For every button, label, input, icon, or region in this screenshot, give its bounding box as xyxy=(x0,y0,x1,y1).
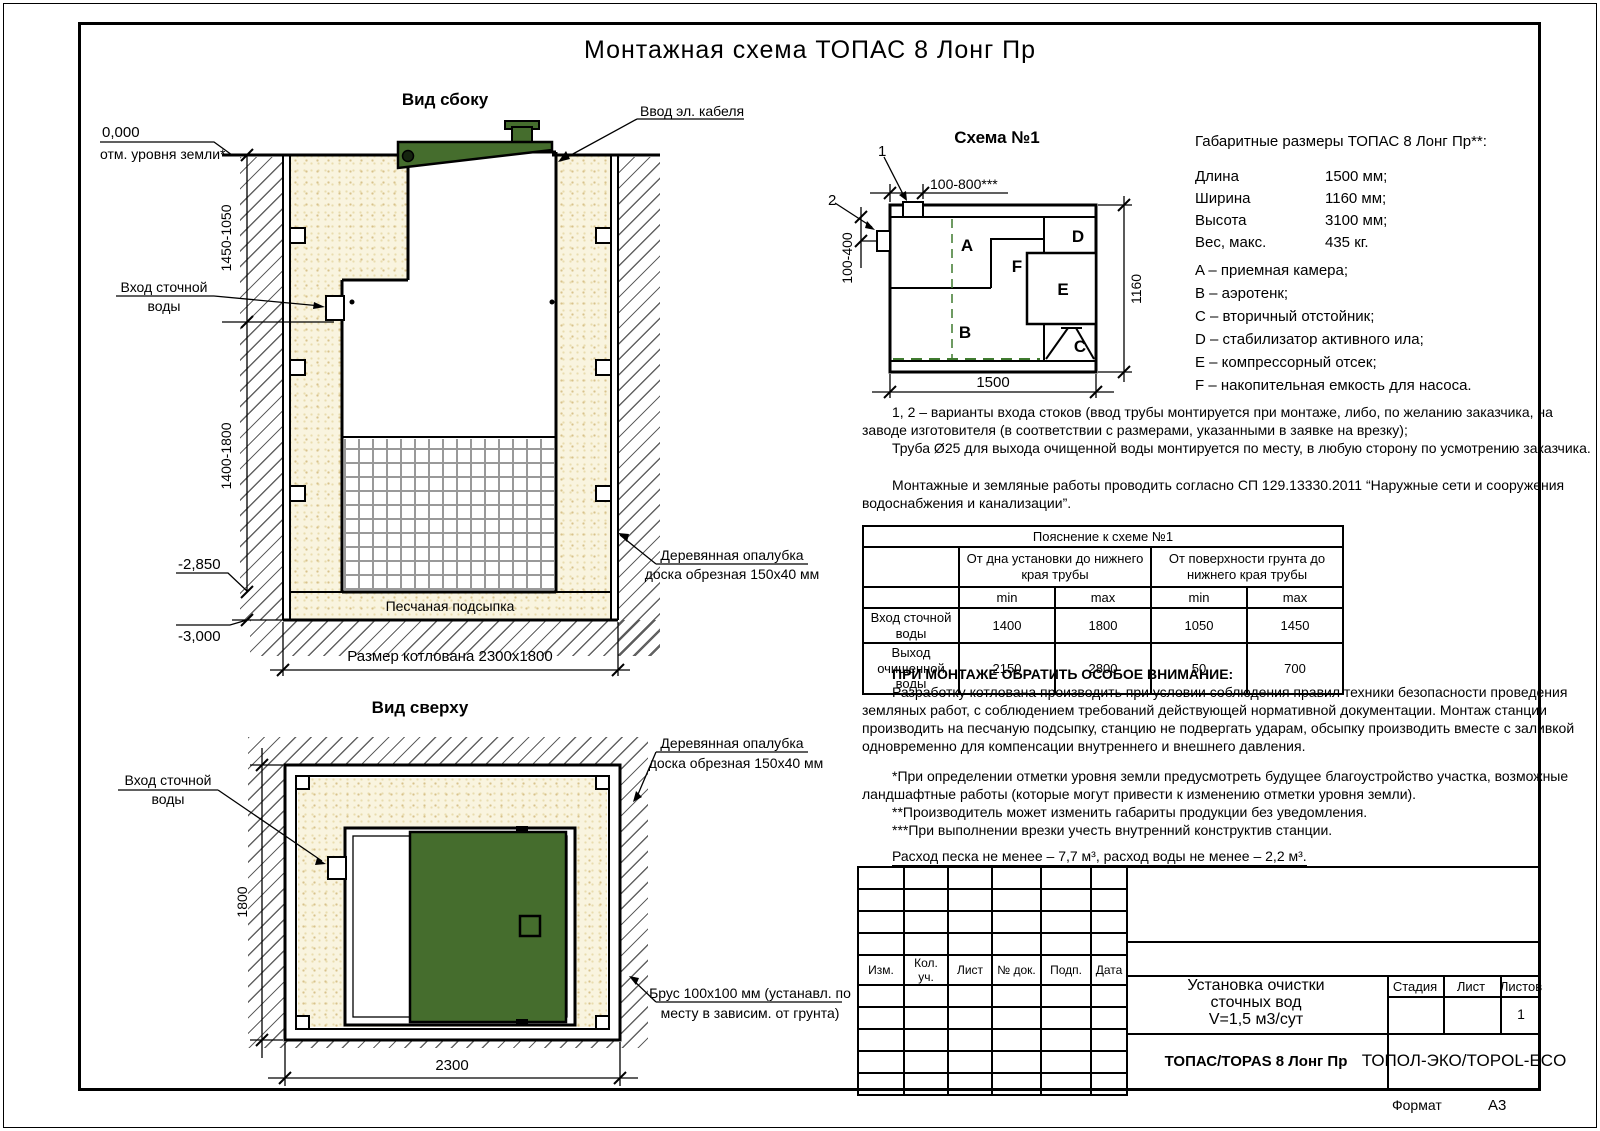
sheets-label: Листов xyxy=(1500,979,1542,994)
tv-formwork-callout-line1: Деревянная опалубка xyxy=(660,735,803,751)
tv-beam-callout-line2: месту в зависим. от грунта) xyxy=(661,1005,840,1021)
sideview-label: Вид сбоку xyxy=(402,90,488,110)
schema1-marker1: 1 xyxy=(878,143,886,160)
format-label: Формат xyxy=(1392,1097,1442,1113)
footnote-1b: ландшафтные работы (которые могут привес… xyxy=(862,786,1416,802)
topview-station-body xyxy=(345,828,575,1025)
tb-divider-h4 xyxy=(1126,1033,1541,1035)
table-row: Вход сточной воды 1400 1800 1050 1450 xyxy=(863,608,1343,643)
cable-entry-callout: Ввод эл. кабеля xyxy=(640,103,744,119)
note-line-4: Монтажные и земляные работы проводить со… xyxy=(892,477,1564,493)
attention-line-4: одновременно для компенсации внутреннего… xyxy=(862,738,1305,754)
legend-d: D – стабилизатор активного ила; xyxy=(1195,331,1424,348)
legend-c: C – вторичный отстойник; xyxy=(1195,308,1374,325)
zero-elevation-mark: 0,000 xyxy=(102,124,140,141)
footnote-2: **Производитель может изменить габариты … xyxy=(892,804,1367,820)
sheet-title: Монтажная схема ТОПАС 8 Лонг Пр xyxy=(584,36,1036,65)
level-bottom-mark: -3,000 xyxy=(178,628,221,645)
note-line-5: водоснабжения и канализации”. xyxy=(862,495,1071,511)
doc-title-line2: сточных вод xyxy=(1210,994,1301,1012)
doc-title-line3: V=1,5 м3/сут xyxy=(1209,1011,1303,1029)
table-max1: max xyxy=(1055,587,1151,608)
compartment-b: B xyxy=(959,323,971,343)
sizes-title: Габаритные размеры ТОПАС 8 Лонг Пр**: xyxy=(1195,133,1487,150)
title-block-revision-table: Изм. Кол. уч. Лист № док. Подп. Дата xyxy=(857,866,1128,1096)
schema1-dim-bottom: 1500 xyxy=(976,374,1009,391)
compartment-e: E xyxy=(1057,280,1068,300)
zero-elevation-note: отм. уровня земли* xyxy=(100,146,225,162)
tb-divider-h1 xyxy=(1126,941,1541,943)
tv-dim-height: 1800 xyxy=(234,886,250,917)
consumption-note: Расход песка не менее – 7,7 м³, расход в… xyxy=(892,848,1307,866)
table-title: Пояснение к схеме №1 xyxy=(863,526,1343,547)
footnote-3: ***При выполнении врезки учесть внутренн… xyxy=(892,822,1332,838)
station-upper-body xyxy=(408,152,556,280)
table-group2: От поверхности грунта до нижнего края тр… xyxy=(1151,547,1343,587)
table-max2: max xyxy=(1247,587,1343,608)
schema1-marker2: 2 xyxy=(828,192,836,209)
tv-inlet-callout-line1: Вход сточной xyxy=(125,772,212,788)
inlet-callout-line1: Вход сточной xyxy=(121,279,208,295)
sideview-sand-left xyxy=(290,280,342,592)
legend-b: B – аэротенк; xyxy=(1195,285,1288,302)
tb-divider-v1 xyxy=(1126,866,1128,1090)
sideview-sand-left-top xyxy=(290,155,408,280)
size-value-height: 3100 мм; xyxy=(1325,212,1387,229)
table-min2: min xyxy=(1151,587,1247,608)
size-value-length: 1500 мм; xyxy=(1325,168,1387,185)
note-line-1: 1, 2 – варианты входа стоков (ввод трубы… xyxy=(892,404,1553,420)
tv-formwork-callout-line2: доска обрезная 150x40 мм xyxy=(649,755,824,771)
sand-bedding-label: Песчаная подсыпка xyxy=(386,598,515,614)
compartment-f: F xyxy=(1012,257,1022,277)
product-name: ТОПАС/TOPAS 8 Лонг Пр xyxy=(1165,1053,1348,1070)
size-label-weight: Вес, макс. xyxy=(1195,234,1266,251)
doc-title-line1: Установка очистки xyxy=(1187,977,1324,995)
tb-divider-h3 xyxy=(1387,996,1541,998)
schema1-label: Схема №1 xyxy=(954,128,1039,148)
tv-inlet-callout-line2: воды xyxy=(152,791,185,807)
dim-depth-lower: 1400-1800 xyxy=(218,423,234,490)
attention-heading: ПРИ МОНТАЖЕ ОБРАТИТЬ ОСОБОЕ ВНИМАНИЕ: xyxy=(892,666,1233,682)
format-value: А3 xyxy=(1488,1097,1506,1114)
attention-line-2: земляных работ, с соблюдением требований… xyxy=(862,702,1547,718)
compartment-d: D xyxy=(1072,227,1084,247)
table-min1: min xyxy=(959,587,1055,608)
attention-line-3: производить на песчаную подсыпку, станци… xyxy=(862,720,1574,736)
schema1-dim-right: 1160 xyxy=(1128,274,1144,304)
size-label-height: Высота xyxy=(1195,212,1247,229)
inlet-callout-line2: воды xyxy=(148,298,181,314)
stage-label: Стадия xyxy=(1393,979,1437,994)
size-value-weight: 435 кг. xyxy=(1325,234,1369,251)
compartment-a: A xyxy=(961,236,973,256)
tv-beam-callout-line1: Брус 100x100 мм (устанавл. по xyxy=(649,985,851,1001)
legend-a: A – приемная камера; xyxy=(1195,262,1348,279)
drawing-sheet: Монтажная схема ТОПАС 8 Лонг Пр Вид сбок… xyxy=(0,0,1600,1131)
level-sand-mark: -2,850 xyxy=(178,556,221,573)
company-name: ТОПОЛ-ЭКО/TOPOL-ECO xyxy=(1362,1051,1567,1071)
schema1-dim-left: 100-400 xyxy=(839,232,855,283)
dim-depth-upper: 1450-1050 xyxy=(218,205,234,272)
topview-label: Вид сверху xyxy=(372,698,469,718)
tv-dim-width: 2300 xyxy=(435,1057,468,1074)
tb-divider-v3 xyxy=(1443,975,1445,1035)
station-lower-grid-section xyxy=(344,439,554,590)
legend-e: E – компрессорный отсек; xyxy=(1195,354,1377,371)
formwork-callout-line2: доска обрезная 150x40 мм xyxy=(645,566,820,582)
compartment-c: C xyxy=(1074,337,1086,357)
formwork-callout-line1: Деревянная опалубка xyxy=(660,547,803,563)
size-label-length: Длина xyxy=(1195,168,1239,185)
sheets-value: 1 xyxy=(1517,1006,1525,1022)
size-label-width: Ширина xyxy=(1195,190,1250,207)
footnote-1a: *При определении отметки уровня земли пр… xyxy=(892,768,1568,784)
legend-f: F – накопительная емкость для насоса. xyxy=(1195,377,1472,394)
attention-line-1: Разработку котлована производить при усл… xyxy=(892,684,1567,700)
schema1-dim-top: 100-800*** xyxy=(930,176,998,192)
note-line-2: заводе изготовителя (в соответствии с ра… xyxy=(862,422,1408,438)
note-line-3: Труба Ø25 для выхода очищенной воды монт… xyxy=(892,440,1591,456)
sideview-sand-right xyxy=(556,155,611,592)
pit-size-dim: Размер котлована 2300x1800 xyxy=(347,648,552,665)
sideview-ground-hatch-left xyxy=(240,157,283,620)
revision-header-row: Изм. Кол. уч. Лист № док. Подп. Дата xyxy=(858,955,1127,985)
table-group1: От дна установки до нижнего края трубы xyxy=(959,547,1151,587)
sheet-label: Лист xyxy=(1457,979,1485,994)
size-value-width: 1160 мм; xyxy=(1325,190,1386,207)
station-mid-body xyxy=(342,280,556,437)
